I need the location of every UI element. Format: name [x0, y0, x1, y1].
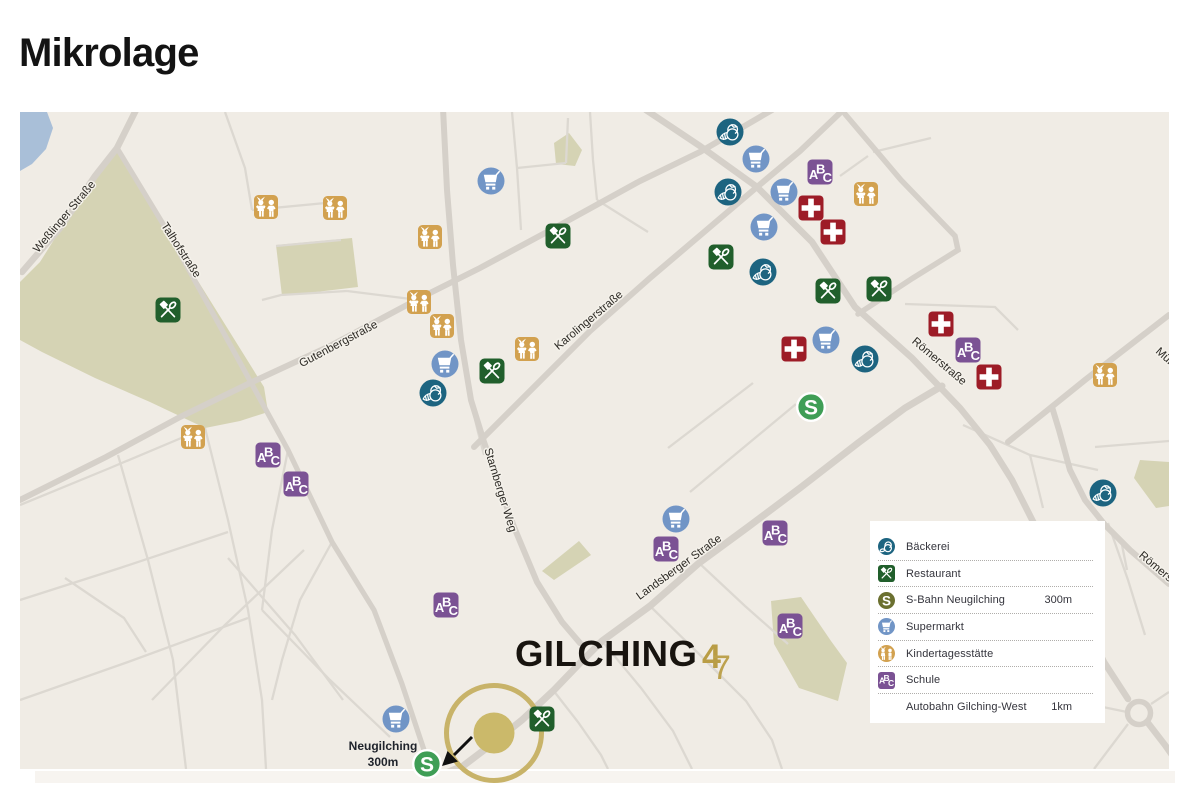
svg-text:7: 7: [712, 649, 731, 687]
svg-text:S: S: [882, 593, 891, 608]
svg-text:C: C: [888, 678, 894, 688]
svg-text:Neugilching: Neugilching: [349, 739, 418, 753]
svg-text:300m: 300m: [368, 755, 399, 769]
svg-text:GILCHING: GILCHING: [515, 633, 697, 674]
